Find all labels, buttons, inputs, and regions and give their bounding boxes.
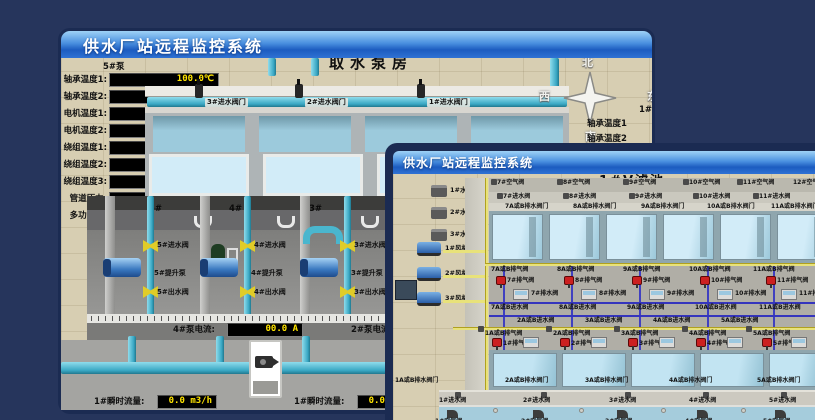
valve-label: 11A或B排水阀门 bbox=[771, 204, 815, 210]
camera-base bbox=[253, 381, 278, 394]
pool-cell bbox=[259, 116, 351, 152]
bay-outlet-label: 4#出水阀 bbox=[254, 289, 286, 296]
channel-port bbox=[741, 408, 746, 413]
control-box-icon[interactable] bbox=[727, 337, 743, 348]
bay-divider bbox=[200, 196, 210, 318]
pump-current-label: 2#泵电流 bbox=[351, 326, 390, 335]
valve-label: 2A或B排气阀 bbox=[553, 331, 590, 337]
valve-label: 12#空气阀 bbox=[793, 180, 815, 186]
bay-inlet-label: 5#进水阀 bbox=[157, 242, 189, 249]
exhaust-valve-icon[interactable] bbox=[497, 277, 505, 284]
blower-icon[interactable] bbox=[417, 267, 441, 281]
air-valve-elbow-icon[interactable] bbox=[697, 410, 708, 418]
valve-label: 5#进水阀 bbox=[769, 398, 796, 404]
control-box-icon[interactable] bbox=[791, 337, 807, 348]
inlet-valve-icon[interactable] bbox=[629, 193, 635, 199]
bay-pump-label: 3#提升泵 bbox=[351, 270, 383, 277]
valve-label: 9A或B进水阀 bbox=[627, 305, 664, 311]
valve-label: 9#空气阀 bbox=[629, 180, 656, 186]
bay-pump-label: 4#提升泵 bbox=[251, 270, 283, 277]
compass-north-label: 北 bbox=[582, 58, 593, 70]
air-valve-icon[interactable] bbox=[478, 326, 484, 332]
camera-button[interactable] bbox=[249, 340, 282, 398]
pipe-stub bbox=[311, 58, 319, 76]
valve-label: 8A或B排水阀门 bbox=[573, 204, 616, 210]
exhaust-valve-icon[interactable] bbox=[767, 277, 775, 284]
valve-label: 11#排气阀 bbox=[777, 278, 808, 284]
camera-lens-icon bbox=[260, 359, 266, 365]
inlet-gate-valve-icon[interactable] bbox=[417, 84, 425, 98]
front-window-titlebar[interactable]: 供水厂站远程监控系统 bbox=[393, 151, 815, 174]
backwash-pump-icon[interactable] bbox=[431, 229, 447, 241]
pipe-stub bbox=[268, 58, 276, 76]
exhaust-valve-icon[interactable] bbox=[697, 339, 705, 346]
control-box-icon[interactable] bbox=[513, 289, 529, 300]
bay-divider bbox=[300, 196, 310, 318]
valve-label: 4A或B排水阀门 bbox=[669, 378, 712, 384]
valve-label: 10A或B排水阀门 bbox=[707, 204, 755, 210]
valve-label: 1A或B排水阀门 bbox=[395, 378, 438, 384]
valve-label: 7A或B排水阀门 bbox=[505, 204, 548, 210]
filter-cell bbox=[777, 214, 815, 260]
valve-label: 4A或B排气阀 bbox=[689, 331, 726, 337]
compass-west-label: 西 bbox=[539, 88, 550, 104]
control-box-icon[interactable] bbox=[781, 289, 797, 300]
pool-cell bbox=[153, 116, 245, 152]
panel-label: 电机温度2: bbox=[61, 127, 107, 136]
right-panel-title: 1# bbox=[639, 106, 652, 115]
front-window-title: 供水厂站远程监控系统 bbox=[403, 154, 533, 171]
valve-label: 9#排水阀 bbox=[667, 291, 694, 297]
air-valve-icon[interactable] bbox=[623, 179, 629, 185]
control-box-icon[interactable] bbox=[581, 289, 597, 300]
valve-label: 5A或B排水阀门 bbox=[757, 378, 800, 384]
filter-cell bbox=[663, 214, 714, 260]
control-box-icon[interactable] bbox=[591, 337, 607, 348]
valve-label: 5A或B排气阀 bbox=[753, 331, 790, 337]
walkway-beam bbox=[145, 86, 569, 97]
control-box-icon[interactable] bbox=[659, 337, 675, 348]
backwash-pump-icon[interactable] bbox=[431, 185, 447, 197]
compass-icon bbox=[562, 70, 618, 126]
air-valve-elbow-icon[interactable] bbox=[447, 410, 458, 418]
air-valve-elbow-icon[interactable] bbox=[533, 410, 544, 418]
air-valve-icon[interactable] bbox=[546, 326, 552, 332]
inlet-valve-icon[interactable] bbox=[753, 193, 759, 199]
valve-label: 8#排气阀 bbox=[575, 278, 602, 284]
bay-pipe bbox=[147, 196, 154, 316]
valve-label: 7#进水阀 bbox=[503, 194, 530, 200]
air-valve-icon[interactable] bbox=[737, 179, 743, 185]
pool-cell bbox=[149, 154, 249, 196]
exhaust-valve-icon[interactable] bbox=[493, 339, 501, 346]
air-pipe-branch bbox=[443, 275, 485, 278]
air-valve-elbow-icon[interactable] bbox=[617, 410, 628, 418]
valve-label: 10#排水阀 bbox=[735, 291, 766, 297]
desktop: { "colors": { "desktop": "#26355c", "tit… bbox=[0, 0, 815, 420]
flow-label: 1#瞬时流量: bbox=[94, 398, 144, 407]
u-pipe bbox=[303, 226, 343, 244]
valve-label: 8#排水阀 bbox=[599, 291, 626, 297]
bay-divider bbox=[105, 196, 115, 318]
exhaust-valve-icon[interactable] bbox=[629, 339, 637, 346]
right-panel-label: 轴承温度1 bbox=[587, 120, 627, 129]
filter-cell bbox=[720, 214, 771, 260]
compass-east-label: 东 bbox=[647, 88, 652, 104]
bay-outlet-label: 5#出水阀 bbox=[157, 289, 189, 296]
valve-label: 8#进水阀 bbox=[569, 194, 596, 200]
camera-flash-icon bbox=[273, 358, 279, 366]
valve-label: 9A或B排水阀门 bbox=[641, 204, 684, 210]
filter-cell bbox=[549, 214, 600, 260]
air-valve-icon[interactable] bbox=[746, 326, 752, 332]
lift-pump-icon[interactable] bbox=[200, 258, 238, 277]
channel-port bbox=[661, 408, 666, 413]
valve-label: 7A或B进水阀 bbox=[491, 305, 528, 311]
air-valve-icon[interactable] bbox=[682, 326, 688, 332]
exhaust-valve-icon[interactable] bbox=[561, 339, 569, 346]
control-box-icon[interactable] bbox=[717, 289, 733, 300]
pump-current-label: 4#泵电流: bbox=[173, 326, 215, 335]
valve-label: 2#进水阀门 bbox=[305, 98, 348, 107]
valve-label: 9A或B排气阀 bbox=[623, 267, 660, 273]
bay-pump-label: 5#提升泵 bbox=[154, 270, 186, 277]
valve-label: 8#空气阀 bbox=[563, 180, 590, 186]
back-window-title: 供水厂站远程监控系统 bbox=[83, 33, 263, 57]
valve-label: 11A或B进水阀 bbox=[759, 305, 801, 311]
valve-label: 10#排气阀 bbox=[711, 278, 742, 284]
valve-label: 7#排气阀 bbox=[507, 278, 534, 284]
electrical-cabinet bbox=[395, 280, 417, 300]
filter-pool-scene: 1#V滤池 1#水泵 2#水泵 3#水泵 1#风机 2#风机 3#风机 7#空气… bbox=[393, 174, 815, 420]
valve-label: 11#排水阀 bbox=[799, 291, 815, 297]
valve-label: 8A或B排气阀 bbox=[557, 267, 594, 273]
valve-label: 10#进水阀 bbox=[699, 194, 730, 200]
backwash-pump-icon[interactable] bbox=[431, 207, 447, 219]
air-valve-icon[interactable] bbox=[614, 326, 620, 332]
valve-label: 11#进水阀 bbox=[759, 194, 790, 200]
valve-label: 1#进水阀 bbox=[439, 398, 466, 404]
air-pipe-branch bbox=[443, 250, 485, 253]
valve-label: 3A或B排气阀 bbox=[621, 331, 658, 337]
valve-label: 9#排气阀 bbox=[643, 278, 670, 284]
inlet-valve-icon[interactable] bbox=[497, 193, 503, 199]
inlet-valve-icon[interactable] bbox=[693, 193, 699, 199]
valve-label: 3A或B排水阀门 bbox=[585, 378, 628, 384]
valve-label: 10A或B进水阀 bbox=[695, 305, 737, 311]
valve-label: 3#进水阀 bbox=[609, 398, 636, 404]
pump-panel-title: 5#泵 bbox=[103, 63, 125, 72]
valve-label: 11A或B排气阀 bbox=[753, 267, 795, 273]
blower-icon[interactable] bbox=[417, 242, 441, 256]
valve-label: 3A或B进水阀 bbox=[585, 318, 622, 324]
exhaust-valve-icon[interactable] bbox=[701, 277, 709, 284]
control-box-icon[interactable] bbox=[523, 337, 539, 348]
lift-pump-icon[interactable] bbox=[103, 258, 141, 277]
pool-cell bbox=[263, 154, 363, 196]
flow-label: 1#瞬时流量: bbox=[294, 398, 344, 407]
panel-label: 电机温度1: bbox=[61, 110, 107, 119]
valve-label: 2A或B进水阀 bbox=[517, 318, 554, 324]
valve-label: 4A或B进水阀 bbox=[653, 318, 690, 324]
valve-label: 8A或B进水阀 bbox=[559, 305, 596, 311]
valve-label: 1#进水阀门 bbox=[427, 98, 470, 107]
wall-window bbox=[277, 216, 295, 228]
panel-label: 绕组温度1: bbox=[61, 144, 107, 153]
exhaust-valve-icon[interactable] bbox=[565, 277, 573, 284]
valve-label: 2A或B排水阀门 bbox=[505, 378, 548, 384]
air-pipe-branch bbox=[443, 300, 485, 303]
exhaust-valve-icon[interactable] bbox=[763, 339, 771, 346]
valve-label: 7#排水阀 bbox=[531, 291, 558, 297]
bay-inlet-label: 3#进水阀 bbox=[354, 242, 386, 249]
service-road bbox=[465, 178, 485, 420]
valve-label: 11#空气阀 bbox=[743, 180, 774, 186]
bay-pipe bbox=[244, 196, 251, 316]
bay-inlet-label: 4#进水阀 bbox=[254, 242, 286, 249]
valve-label: 7A或B排气阀 bbox=[491, 267, 528, 273]
inlet-gate-valve-icon[interactable] bbox=[195, 84, 203, 98]
air-valve-icon[interactable] bbox=[491, 179, 497, 185]
air-valve-icon[interactable] bbox=[557, 179, 563, 185]
flow-value[interactable]: 0.0 m3/h bbox=[157, 395, 217, 409]
panel-label: 轴承温度2: bbox=[61, 93, 107, 102]
air-valve-icon[interactable] bbox=[683, 179, 689, 185]
scene-title: 取水泵房 bbox=[329, 58, 413, 71]
pump-current-value[interactable]: 00.0 A bbox=[227, 323, 303, 337]
panel-label: 绕组温度2: bbox=[61, 161, 107, 170]
filter-cell bbox=[492, 214, 543, 260]
back-window-titlebar[interactable]: 供水厂站远程监控系统 bbox=[61, 31, 652, 58]
bay-outlet-label: 3#出水阀 bbox=[354, 289, 386, 296]
wall-number: 3# bbox=[309, 205, 322, 214]
valve-label: 9#进水阀 bbox=[635, 194, 662, 200]
panel-label: 绕组温度3: bbox=[61, 178, 107, 187]
wall-window bbox=[361, 216, 379, 228]
wall-number: 4# bbox=[229, 205, 242, 214]
blower-icon[interactable] bbox=[417, 292, 441, 306]
air-valve-elbow-icon[interactable] bbox=[775, 410, 786, 418]
control-box-icon[interactable] bbox=[649, 289, 665, 300]
valve-label: 2#进水阀 bbox=[523, 398, 550, 404]
panel-label: 轴承温度1: bbox=[61, 76, 107, 85]
filter-pool-window: 供水厂站远程监控系统 1#V滤池 1#水泵 2#水泵 3#水泵 1#风机 2#风… bbox=[385, 143, 815, 420]
filter-cell bbox=[606, 214, 657, 260]
inlet-valve-icon[interactable] bbox=[563, 193, 569, 199]
air-pipe-vertical bbox=[485, 178, 488, 420]
bay-pipe bbox=[344, 196, 351, 316]
valve-label: 7#空气阀 bbox=[497, 180, 524, 186]
exhaust-valve-icon[interactable] bbox=[633, 277, 641, 284]
valve-label: 1A或B排气阀 bbox=[485, 331, 522, 337]
inlet-gate-valve-icon[interactable] bbox=[295, 84, 303, 98]
valve-label: 4#进水阀 bbox=[689, 398, 716, 404]
valve-label: 10A或B排气阀 bbox=[689, 267, 731, 273]
channel-port bbox=[493, 408, 498, 413]
channel-port bbox=[579, 408, 584, 413]
valve-label: 10#空气阀 bbox=[689, 180, 720, 186]
lift-pump-icon[interactable] bbox=[300, 258, 338, 277]
valve-label: 3#进水阀门 bbox=[205, 98, 248, 107]
valve-label: 5A或B进水阀 bbox=[721, 318, 758, 324]
